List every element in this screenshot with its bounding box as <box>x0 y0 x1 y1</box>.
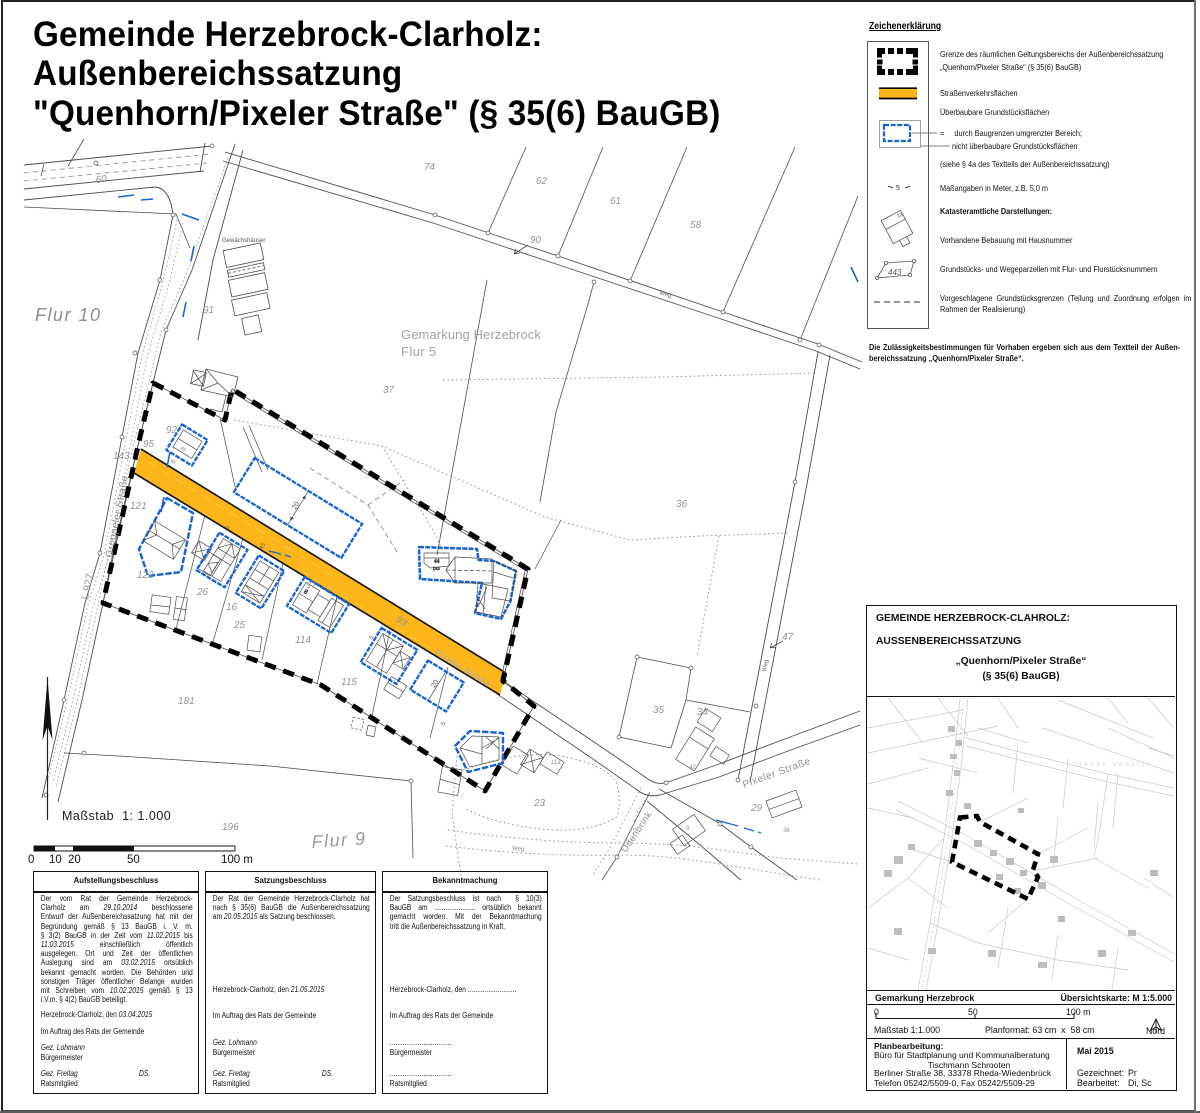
svg-text:196: 196 <box>222 822 239 833</box>
svg-text:35: 35 <box>653 705 665 716</box>
svg-text:11a: 11a <box>551 760 561 766</box>
svg-text:62: 62 <box>536 176 548 187</box>
svg-text:Stenes Venorte: Stenes Venorte <box>1073 761 1152 768</box>
svg-text:181: 181 <box>178 696 195 707</box>
svg-text:23: 23 <box>533 798 546 809</box>
svg-text:114: 114 <box>295 635 311 646</box>
svg-text:143: 143 <box>113 451 130 462</box>
svg-text:50: 50 <box>127 854 140 866</box>
svg-text:20: 20 <box>68 854 81 866</box>
svg-text:74: 74 <box>424 162 436 173</box>
svg-text:8: 8 <box>302 589 309 596</box>
svg-text:26: 26 <box>196 587 209 598</box>
svg-text:Weg: Weg <box>762 659 770 672</box>
svg-text:Gemarkung Herzebrock: Gemarkung Herzebrock <box>401 327 541 342</box>
svg-text:29: 29 <box>750 803 763 814</box>
svg-text:Udenbrink: Udenbrink <box>619 810 654 855</box>
svg-text:92: 92 <box>166 425 178 436</box>
svg-text:115: 115 <box>341 677 357 688</box>
svg-text:443: 443 <box>888 268 902 277</box>
svg-text:42: 42 <box>689 765 696 771</box>
svg-text:34: 34 <box>697 707 709 718</box>
svg-text:121: 121 <box>130 501 147 512</box>
svg-text:Gewächshäuser: Gewächshäuser <box>222 238 265 244</box>
svg-text:97: 97 <box>306 580 317 590</box>
svg-text:25: 25 <box>233 620 246 631</box>
svg-text:100 m: 100 m <box>221 854 253 866</box>
svg-text:44: 44 <box>434 559 440 565</box>
svg-text:58: 58 <box>690 220 702 231</box>
svg-text:Flur 10: Flur 10 <box>35 305 102 325</box>
svg-text:Weg: Weg <box>512 846 525 853</box>
svg-text:61: 61 <box>610 196 621 207</box>
svg-text:9: 9 <box>686 826 690 832</box>
svg-text:DG: DG <box>433 566 440 571</box>
svg-text:5: 5 <box>896 185 900 192</box>
svg-text:122: 122 <box>137 570 154 581</box>
svg-text:L 927: L 927 <box>80 572 96 600</box>
svg-text:20: 20 <box>291 501 301 511</box>
svg-text:36: 36 <box>676 499 688 510</box>
svg-text:0: 0 <box>28 854 34 866</box>
svg-text:Flur 9: Flur 9 <box>311 828 367 852</box>
svg-text:95: 95 <box>143 439 155 450</box>
svg-text:5: 5 <box>441 720 448 727</box>
svg-text:Flur 5: Flur 5 <box>401 344 437 359</box>
svg-text:60: 60 <box>95 174 108 186</box>
svg-text:10: 10 <box>49 854 62 866</box>
svg-text:47: 47 <box>782 632 794 643</box>
svg-text:91: 91 <box>203 305 214 316</box>
svg-text:46: 46 <box>179 445 187 453</box>
svg-text:20: 20 <box>430 679 440 689</box>
svg-text:5: 5 <box>171 458 178 465</box>
svg-text:36: 36 <box>783 828 790 834</box>
svg-text:16: 16 <box>226 602 238 613</box>
svg-text:90: 90 <box>530 235 542 246</box>
svg-text:37: 37 <box>383 385 395 396</box>
svg-text:Weg: Weg <box>658 290 671 299</box>
